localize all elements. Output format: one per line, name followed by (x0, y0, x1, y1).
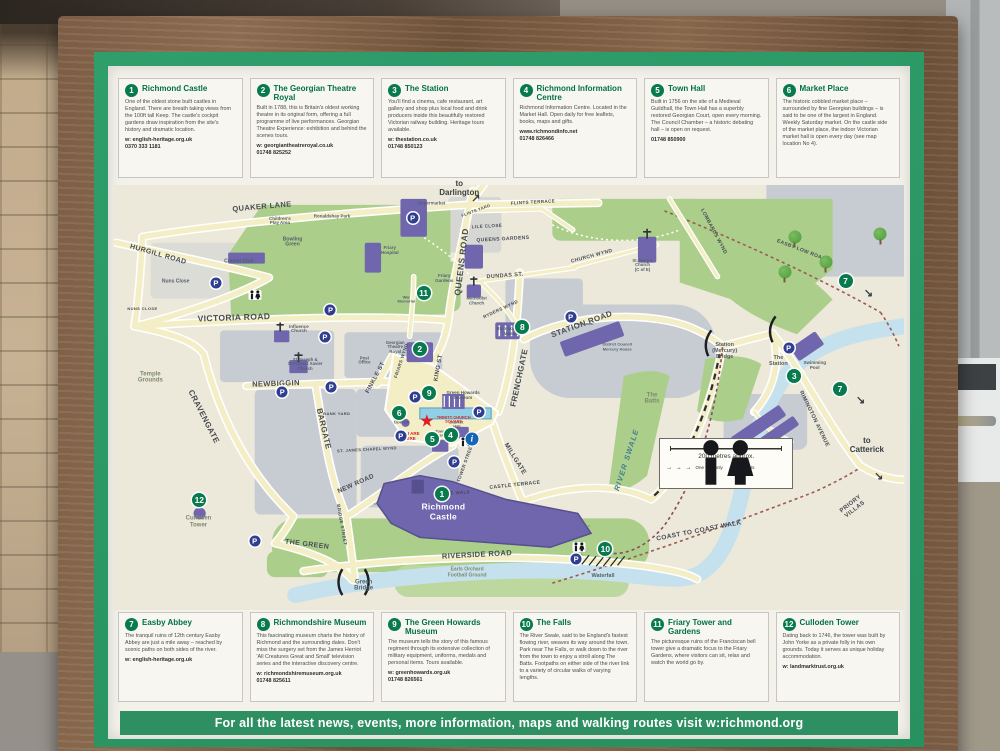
info-box-information-centre: 4Richmond Information Centre Richmond In… (513, 78, 638, 178)
pl-label: Nuns Close (162, 279, 190, 285)
box-title: Richmond Castle (142, 84, 207, 94)
street-label: NEWBIGGIN (252, 379, 300, 389)
box-website: w: greenhowards.org.uk (388, 670, 499, 677)
direction-arrow-icon: ↘ (874, 470, 883, 483)
parking-icon: P (210, 277, 221, 288)
box-phone: 01748 825611 (257, 678, 368, 685)
map-badge-11: 11 (417, 286, 431, 300)
pl-label: Cricket Club (224, 259, 253, 265)
street-label: FRENCHGATE (510, 349, 531, 409)
parking-icon: P (565, 312, 576, 323)
pl-label: Post Office (358, 356, 370, 365)
box-body: Built in 1756 on the site of a Medieval … (651, 99, 762, 134)
ca-label: Richmond Castle (421, 503, 465, 522)
map-badge-8: 8 (515, 320, 529, 334)
pl-label: Bowling Green (283, 237, 302, 248)
ar-label: Earls Orchard Football Ground (448, 568, 487, 579)
street-label: MILLGATE (503, 442, 528, 476)
number-badge: 4 (520, 84, 533, 97)
street-label: STATION ROAD (550, 310, 614, 340)
red-label: YOU ARE HERE (399, 432, 419, 442)
box-body: Dating back to 1746, the tower was built… (783, 633, 894, 661)
number-badge: 8 (257, 618, 270, 631)
box-phone: 0370 333 1181 (125, 144, 236, 151)
map-badge-7: 7 (839, 274, 853, 288)
box-title: The Falls (537, 618, 572, 628)
box-body: The museum tells the story of this famou… (388, 639, 499, 667)
street-label: KING ST (434, 354, 445, 382)
pl-label: Town Hall (435, 430, 445, 439)
street-label: BRIDGE STREET (335, 504, 347, 546)
street-label: QUAKER LANE (232, 200, 292, 213)
pl-label: Swimming Pool (803, 362, 826, 372)
number-badge: 10 (520, 618, 533, 631)
box-title: Market Place (800, 84, 849, 94)
box-body: The tranquil ruins of 12th century Easby… (125, 633, 236, 654)
street-label: PRIORY VILLAS (829, 486, 877, 528)
footer-banner: For all the latest news, events, more in… (120, 711, 898, 735)
toilets-icon (460, 437, 473, 447)
info-box-green-howards-museum: 9The Green Howards Museum The museum tel… (381, 612, 506, 702)
street-label: CHURCH WYND (571, 249, 614, 265)
box-website: w: thestation.co.uk (388, 137, 499, 144)
street-label: RYDERS WYND (483, 300, 520, 321)
info-box-town-hall: 5Town Hall Built in 1756 on the site of … (644, 78, 769, 178)
street-label: ST. JAMES CHAPEL WYND (337, 446, 397, 454)
number-badge: 5 (651, 84, 664, 97)
street-label: QUEENS GARDENS (477, 236, 530, 244)
number-badge: 1 (125, 84, 138, 97)
street-label: CRAVENGATE (186, 388, 221, 444)
street-label: THE GREEN (284, 539, 329, 552)
tree-icon (819, 255, 832, 268)
pl-label: Friary Hospital (381, 246, 399, 256)
red-label: TRINITY CHURCH SQUARE (437, 415, 471, 424)
wooden-frame: 1Richmond Castle One of the oldest stone… (58, 16, 958, 751)
pl-label: Methodist Church (466, 297, 486, 306)
box-website: www.richmondinfo.net (520, 129, 631, 136)
info-box-the-station: 3The Station You'll find a cinema, cafe … (381, 78, 506, 178)
town-map: QUAKER LANEHURGILL ROADVICTORIA ROADQUEE… (114, 185, 904, 610)
street-label: EASBY LOW ROAD (776, 239, 826, 263)
toilets-icon (248, 290, 261, 300)
number-badge: 6 (783, 84, 796, 97)
box-title: Easby Abbey (142, 618, 192, 628)
map-badge-3: 3 (787, 369, 801, 383)
green-mat-border: 1Richmond Castle One of the oldest stone… (94, 52, 924, 747)
box-title: Friary Tower and Gardens (668, 618, 762, 637)
pl-label: St. Mary's Church (C of E) (632, 259, 652, 273)
number-badge: 2 (257, 84, 270, 97)
map-sign-face: 1Richmond Castle One of the oldest stone… (108, 66, 910, 739)
box-website: w: georgiantheatreroyal.co.uk (257, 143, 368, 150)
street-label: LOMBARDS WYND (698, 208, 727, 255)
box-website: w: richmondshiremuseum.org.uk (257, 671, 368, 678)
tree-icon (874, 227, 887, 240)
street-label: NUNS CLOSE (127, 307, 157, 311)
street-label: QUEENS ROAD (453, 227, 471, 295)
pl-label: District Council Mercury House (602, 343, 632, 352)
box-body: This fascinating museum charts the histo… (257, 633, 368, 668)
street-label: NEW ROAD (336, 473, 375, 496)
map-badge-4: 4 (444, 428, 458, 442)
box-phone: 01748 850900 (651, 137, 762, 144)
street-label: BARGATE (314, 408, 332, 451)
wa-label: RIVER SWALE (613, 428, 641, 492)
pl-label: Ronaldshay Park (314, 215, 351, 220)
number-badge: 11 (651, 618, 664, 631)
street-label: COAST TO COAST WALK (655, 519, 741, 543)
tree-icon (778, 265, 791, 278)
street-label: FRIARS WYND (394, 343, 410, 379)
pl-label: Obelisk (394, 421, 410, 426)
box-body: The historic cobbled market place – surr… (783, 99, 894, 148)
pl-label: Waterfall (591, 573, 614, 579)
map-badge-2: 2 (413, 342, 427, 356)
street-label: RIMINGTON AVENUE (798, 390, 830, 448)
box-body: Richmond Information Centre. Located in … (520, 105, 631, 126)
pl-label: Station (Mercury) Bridge (712, 342, 737, 360)
info-box-market-place: 6Market Place The historic cobbled marke… (776, 78, 901, 178)
map-badge-1: 1 (435, 487, 449, 501)
box-title: The Green Howards Museum (405, 618, 499, 637)
street-label: FLINTS YARD (461, 203, 491, 218)
parking-icon: P (473, 406, 484, 417)
map-badge-12: 12 (192, 493, 206, 507)
direction-arrow-icon: ↘ (864, 287, 873, 300)
map-badge-5: 5 (425, 432, 439, 446)
map-legend: 200 metres approx. → → → One way only To… (659, 438, 793, 489)
box-body: You'll find a cinema, cafe restaurant, a… (388, 99, 499, 134)
box-website: w: landmarktrust.org.uk (783, 664, 894, 671)
box-title: Richmond Information Centre (537, 84, 631, 103)
box-phone: 01748 850123 (388, 144, 499, 151)
information-icon: i (465, 432, 478, 445)
box-website: w: english-heritage.org.uk (125, 657, 236, 664)
direction-arrow-icon: ↘ (856, 393, 865, 406)
parking-icon: P (277, 386, 288, 397)
parking-icon: P (449, 456, 460, 467)
info-boxes-top: 1Richmond Castle One of the oldest stone… (118, 78, 900, 178)
parking-icon: P (319, 332, 330, 343)
ar-label: The Batts (644, 392, 659, 405)
direction-arrow-icon: ↗ (471, 191, 480, 204)
info-box-culloden-tower: 12Culloden Tower Dating back to 1746, th… (776, 612, 901, 702)
box-title: Richmondshire Museum (274, 618, 367, 628)
map-badge-9: 9 (422, 386, 436, 400)
pl-label: War Memorial (398, 295, 416, 304)
info-box-richmond-castle: 1Richmond Castle One of the oldest stone… (118, 78, 243, 178)
box-website: w: english-heritage.org.uk (125, 137, 236, 144)
parking-icon: P (409, 392, 420, 403)
street-label: DUNDAS ST. (486, 272, 523, 281)
info-box-the-falls: 10The Falls The River Swale, said to be … (513, 612, 638, 702)
box-phone: 01748 826466 (520, 136, 631, 143)
box-title: The Station (405, 84, 449, 94)
info-box-richmondshire-museum: 8Richmondshire Museum This fascinating m… (250, 612, 375, 702)
street-label: TOWER STREET (457, 444, 475, 484)
pl-label: Market Hall (450, 420, 463, 429)
number-badge: 7 (125, 618, 138, 631)
pl-label: The Station (769, 354, 788, 366)
photo-of-information-board: 1Richmond Castle One of the oldest stone… (0, 0, 1000, 751)
dest-label: to Darlington (439, 180, 479, 198)
box-title: The Georgian Theatre Royal (274, 84, 368, 103)
street-label: LILE CLOSE (472, 223, 503, 230)
info-box-friary-tower: 11Friary Tower and Gardens The picturesq… (644, 612, 769, 702)
box-body: One of the oldest stone built castles in… (125, 99, 236, 134)
number-badge: 9 (388, 618, 401, 631)
info-box-georgian-theatre: 2The Georgian Theatre Royal Built in 178… (250, 78, 375, 178)
pl-label: Green Howards Museum (447, 391, 480, 401)
street-label: CASTLE TERRACE (490, 480, 541, 491)
pl-label: Georgian Theatre Royal (386, 341, 405, 355)
box-body: Built in 1788, this is Britain's oldest … (257, 105, 368, 140)
parking-icon: P (249, 536, 260, 547)
map-overlays: QUAKER LANEHURGILL ROADVICTORIA ROADQUEE… (114, 185, 904, 610)
toilets-icon (726, 463, 739, 473)
number-badge: 12 (783, 618, 796, 631)
box-body: The River Swale, said to be England's fa… (520, 633, 631, 682)
ar-label: Culloden Tower (186, 515, 212, 528)
tree-icon (788, 230, 801, 243)
parking-icon: P (571, 554, 582, 565)
pl-label: St Joseph & St Francis Xavier Church (288, 358, 323, 372)
pl-label: Influence Church (289, 325, 309, 335)
pl-label: Supermarket (418, 201, 446, 206)
map-badge-10: 10 (598, 542, 612, 556)
street-label: FINKLE ST (365, 362, 387, 396)
box-phone: 01748 825252 (257, 150, 368, 157)
number-badge: 3 (388, 84, 401, 97)
parking-icon: P (325, 305, 336, 316)
parking-icon: P (326, 381, 337, 392)
pl-label: Children's Play Area (269, 217, 291, 227)
info-boxes-bottom: 7Easby Abbey The tranquil ruins of 12th … (118, 612, 900, 702)
pl-label: weekends (574, 322, 593, 326)
box-title: Town Hall (668, 84, 705, 94)
street-label: BANK YARD (323, 411, 350, 415)
you-are-here-star-icon: ★ (419, 412, 434, 429)
parking-icon: P (783, 343, 794, 354)
street-label: FLINTS TERRACE (510, 199, 555, 206)
street-label: CASTLE WALK (434, 490, 471, 497)
map-badge-6: 6 (392, 406, 406, 420)
parking-icon: P (407, 212, 418, 223)
box-title: Culloden Tower (800, 618, 859, 628)
info-box-easby-abbey: 7Easby Abbey The tranquil ruins of 12th … (118, 612, 243, 702)
box-body: The picturesque ruins of the Franciscan … (651, 639, 762, 667)
box-phone: 01748 826561 (388, 677, 499, 684)
parking-icon: P (395, 430, 406, 441)
street-label: RIVERSIDE ROAD (442, 549, 513, 561)
ar-label: Temple Grounds (138, 371, 163, 384)
pl-label: Friary Gardens (435, 274, 453, 284)
pl-label: Green Bridge (354, 579, 373, 592)
street-label: HURGILL ROAD (129, 243, 187, 266)
pl-label: Richmondshire Museum (497, 327, 530, 337)
map-badge-7: 7 (833, 382, 847, 396)
dest-label: to Catterick (850, 438, 884, 456)
toilets-icon (572, 542, 585, 552)
street-label: VICTORIA ROAD (198, 312, 271, 324)
